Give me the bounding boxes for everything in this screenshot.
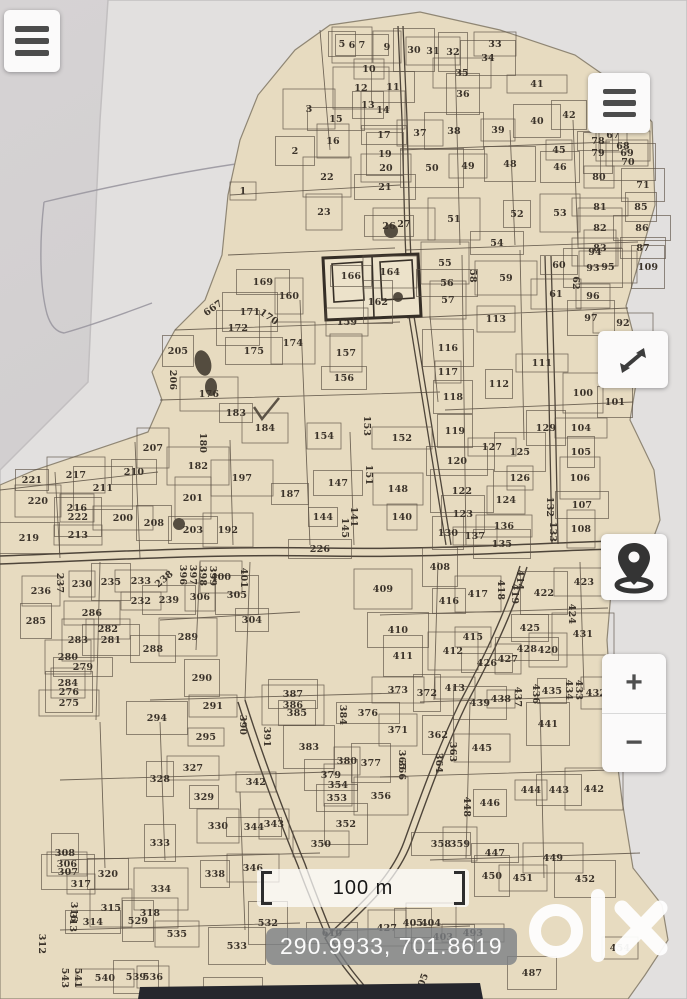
parcel-label: 401 [238,568,249,588]
parcel-label: 222 [68,512,88,523]
parcel-label: 52 [510,209,524,220]
parcel-label: 350 [311,839,332,850]
parcel-label: 172 [228,323,248,334]
parcel-label: 529 [128,916,149,927]
parcel-label: 294 [147,713,168,724]
scale-end-right [454,871,465,905]
parcel-label: 59 [499,273,513,284]
parcel-label: 118 [443,392,464,403]
parcel-label: 148 [388,484,409,495]
zoom-out-button[interactable]: − [602,714,666,773]
parcel-label: 166 [341,271,362,282]
parcel-label: 446 [480,798,501,809]
parcel-label: 159 [337,317,358,328]
parcel-label: 426 [477,658,498,669]
parcel-label: 447 [485,848,505,859]
parcel-label: 39 [491,125,505,136]
parcel-label: 117 [438,367,458,378]
parcel-label: 80 [592,172,606,183]
parcel-label: 233 [131,576,151,587]
parcel-label: 79 [591,148,605,159]
parcel-label: 152 [392,433,412,444]
parcel-label: 1 [240,186,247,197]
parcel-label: 352 [336,819,356,830]
parcel-label: 397 [187,565,198,585]
parcel-label: 135 [492,539,512,550]
parcel-label: 157 [336,348,356,359]
scale-bar: 100 m [257,869,469,907]
parcel-label: 5 [339,39,346,50]
parcel-label: 127 [482,442,502,453]
parcel-label: 533 [227,941,247,952]
parcel-label: 144 [313,512,334,523]
parcel-label: 372 [417,688,437,699]
parcel-label: 26 [382,221,396,232]
parcel-label: 354 [328,780,349,791]
parcel-label: 439 [470,698,491,709]
parcel-label: 353 [327,793,347,804]
parcel-label: 383 [299,742,319,753]
parcel-label: 176 [199,389,220,400]
parcel-label: 32 [446,47,460,58]
parcel-label: 376 [358,708,379,719]
parcel-label: 133 [547,522,558,542]
parcel-label: 187 [280,489,300,500]
parcel-label: 132 [544,497,555,517]
parcel-label: 276 [59,687,80,698]
parcel-label: 94 [588,247,602,258]
parcel-label: 445 [472,743,492,754]
parcel-label: 320 [98,869,119,880]
parcel-label: 174 [283,338,304,349]
parcel-label: 180 [197,433,208,454]
parcel-label: 51 [447,214,461,225]
parcel-label: 442 [584,784,604,795]
parcel-label: 415 [463,632,483,643]
parcel-label: 87 [636,243,650,254]
parcel-label: 208 [144,518,165,529]
parcel-label: 85 [634,202,648,213]
parcel-label: 57 [441,295,455,306]
parcel-label: 411 [393,651,413,662]
parcel-label: 433 [573,680,584,700]
parcel-label: 108 [571,524,592,535]
parcel-label: 434 [563,680,574,701]
parcel-label: 410 [388,625,409,636]
parcel-label: 54 [490,238,504,249]
parcel-label: 285 [26,616,46,627]
parcel-label: 23 [317,207,331,218]
parcel-label: 535 [167,929,187,940]
parcel-label: 428 [517,644,538,655]
parcel-label: 82 [593,223,607,234]
parcel-label: 283 [68,635,88,646]
parcel-label: 380 [337,756,358,767]
my-location-button[interactable] [601,534,667,600]
parcel-label: 27 [397,219,411,230]
parcel-label: 420 [538,645,559,656]
parcel-label: 112 [489,379,509,390]
parcel-label: 359 [450,839,471,850]
parcel-label: 211 [93,483,113,494]
parcel-label: 81 [593,202,607,213]
parcel-label: 409 [373,584,394,595]
parcel-label: 35 [455,68,469,79]
parcel-label: 49 [461,161,475,172]
map-photo[interactable]: 1235679303132333410111213141516173536373… [0,0,687,999]
parcel-label: 42 [562,110,576,121]
parcel-label: 416 [439,596,460,607]
parcel-label: 55 [438,258,452,269]
parcel-label: 408 [430,562,451,573]
parcel-label: 275 [59,698,79,709]
parcel-label: 147 [328,478,348,489]
parcel-label: 391 [261,727,272,747]
parcel-label: 279 [73,662,94,673]
parcel-label: 136 [494,521,515,532]
coordinates-readout: 290.9933, 701.8619 [266,928,517,965]
parcel-label: 37 [413,128,427,139]
parcel-label: 140 [392,512,413,523]
parcel-label: 281 [101,635,121,646]
parcel-label: 437 [512,687,523,707]
parcel-label: 62 [570,276,581,290]
parcel-label: 541 [72,968,83,988]
parcel-label: 171 [240,307,260,318]
expand-button[interactable] [598,331,668,388]
hamburger-icon [15,26,49,56]
parcel-label: 2 [292,146,299,157]
parcel-label: 169 [253,277,274,288]
scale-label: 100 m [272,877,454,900]
parcel-label: 443 [549,785,569,796]
parcel-label: 543 [59,968,70,988]
parcel-label: 539 [126,972,147,983]
parcel-label: 126 [510,473,531,484]
parcel-label: 197 [232,473,252,484]
parcel-label: 213 [68,530,88,541]
parcel-label: 364 [433,753,444,774]
parcel-label: 373 [388,685,408,696]
parcel-label: 333 [150,838,170,849]
parcel-label: 356 [371,791,392,802]
parcel-label: 48 [503,159,517,170]
parcel-label: 396 [177,565,188,586]
parcel-label: 330 [208,821,229,832]
parcel-label: 342 [246,777,266,788]
parcel-label: 13 [361,100,375,111]
parcel-label: 366 [396,760,407,781]
parcel-label: 418 [495,580,506,601]
parcel-label: 282 [98,624,118,635]
parcel-label: 235 [101,577,121,588]
parcel-label: 334 [151,884,172,895]
parcel-label: 290 [192,673,213,684]
parcel-label: 286 [82,608,103,619]
parcel-label: 317 [71,879,91,890]
map-viewer: 1235679303132333410111213141516173536373… [0,0,687,999]
parcel-label: 95 [601,262,615,273]
parcel-label: 113 [486,314,506,325]
parcel-label: 217 [66,470,86,481]
menu-button-top-left[interactable] [4,10,60,72]
parcel-label: 10 [362,64,376,75]
parcel-label: 156 [334,373,355,384]
parcel-label: 435 [542,686,562,697]
parcel-label: 201 [183,493,203,504]
parcel-label: 358 [431,839,452,850]
parcel-label: 398 [197,566,208,587]
parcel-label: 307 [58,867,78,878]
parcel-label: 116 [438,343,459,354]
parcel-label: 304 [242,615,263,626]
parcel-label: 210 [124,467,145,478]
menu-button-top-right[interactable] [588,73,650,133]
parcel-label: 106 [570,473,591,484]
parcel-label: 34 [481,53,495,64]
parcel-label: 154 [314,431,335,442]
parcel-label: 387 [283,689,303,700]
parcel-label: 203 [183,525,203,536]
parcel-label: 125 [510,447,530,458]
parcel-label: 384 [337,705,348,726]
scale-end-left [261,871,272,905]
parcel-label: 207 [143,443,163,454]
parcel-label: 183 [226,408,246,419]
parcel-label: 96 [586,291,600,302]
parcel-label: 104 [571,423,592,434]
parcel-label: 151 [363,465,374,485]
parcel-label: 40 [530,116,544,127]
parcel-label: 97 [584,313,598,324]
parcel-label: 17 [377,130,391,141]
parcel-label: 56 [440,278,454,289]
parcel-label: 425 [520,623,540,634]
parcel-label: 20 [379,163,393,174]
parcel-label: 130 [438,528,459,539]
parcel-label: 315 [101,903,121,914]
hamburger-icon [603,89,636,118]
parcel-label: 431 [573,629,593,640]
parcel-label: 9 [384,42,391,53]
parcel-label: 427 [498,654,518,665]
parcel-label: 312 [36,934,47,954]
parcel-label: 123 [453,509,473,520]
parcel-label: 78 [591,136,605,147]
parcel-label: 21 [378,182,392,193]
parcel-label: 50 [425,163,439,174]
parcel-label: 153 [361,416,372,436]
parcel-label: 137 [465,531,485,542]
parcel-label: 111 [532,358,552,369]
parcel-label: 441 [538,719,558,730]
parcel-label: 38 [447,126,461,137]
parcel-label: 19 [378,149,392,160]
parcel-label: 33 [488,39,502,50]
parcel-label: 449 [543,853,564,864]
parcel-label: 308 [55,848,76,859]
olx-logo [512,882,672,974]
parcel-label: 100 [573,388,594,399]
parcel-label: 540 [95,973,116,984]
zoom-controls: + − [602,654,666,772]
diagonal-arrows-icon [615,344,651,376]
zoom-in-button[interactable]: + [602,654,666,713]
parcel-label: 289 [178,632,199,643]
parcel-label: 288 [143,644,164,655]
parcel-label: 417 [468,589,488,600]
parcel-label: 160 [279,291,300,302]
parcel-label: 423 [574,577,594,588]
parcel-label: 205 [168,346,188,357]
minus-icon: − [625,726,643,760]
parcel-label: 239 [159,595,180,606]
parcel-label: 182 [188,461,208,472]
parcel-label: 306 [190,592,211,603]
parcel-label: 3 [306,104,313,115]
parcel-label: 22 [320,172,334,183]
parcel-label: 16 [326,136,340,147]
parcel-label: 93 [586,263,600,274]
parcel-label: 122 [452,486,472,497]
parcel-label: 30 [407,45,421,56]
parcel-label: 343 [264,819,284,830]
parcel-label: 295 [196,732,216,743]
parcel-label: 328 [150,774,171,785]
parcel-label: 105 [571,447,591,458]
parcel-label: 414 [514,570,525,591]
parcel-label: 327 [183,763,203,774]
parcel-label: 438 [491,694,512,705]
parcel-label: 305 [227,590,247,601]
parcel-label: 371 [388,725,408,736]
parcel-label: 119 [445,426,466,437]
parcel-label: 422 [534,588,554,599]
parcel-label: 14 [376,105,390,116]
parcel-label: 7 [359,40,366,51]
parcel-label: 162 [368,297,388,308]
parcel-label: 129 [536,423,557,434]
parcel-label: 385 [287,708,307,719]
parcel-label: 92 [616,318,630,329]
parcel-label: 413 [445,683,465,694]
parcel-label: 86 [635,223,649,234]
parcel-label: 362 [428,730,448,741]
parcel-label: 164 [380,267,401,278]
location-pin-icon [609,539,659,595]
parcel-label: 237 [54,573,65,593]
parcel-label: 344 [244,822,265,833]
parcel-label: 109 [638,262,659,273]
parcel-label: 6 [349,40,356,51]
parcel-label: 424 [566,604,577,625]
parcel-label: 45 [552,145,566,156]
parcel-label: 230 [72,579,93,590]
parcel-label: 412 [443,646,463,657]
parcel-label: 46 [553,162,567,173]
parcel-label: 363 [447,742,458,762]
parcel-label: 71 [636,180,650,191]
parcel-label: 11 [386,82,400,93]
parcel-label: 232 [131,596,151,607]
parcel-label: 41 [530,79,544,90]
parcel-label: 192 [218,525,238,536]
parcel-label: 184 [255,423,276,434]
parcel-label: 220 [28,496,49,507]
parcel-label: 400 [211,572,232,583]
parcel-label: 107 [572,500,592,511]
parcel-label: 377 [361,758,381,769]
parcel-label: 291 [203,701,223,712]
parcel-label: 219 [19,533,40,544]
parcel-label: 444 [521,785,542,796]
parcel-label: 31 [426,46,440,57]
parcel-label: 101 [605,397,625,408]
parcel-label: 314 [83,917,104,928]
parcel-label: 206 [167,370,178,391]
parcel-label: 58 [467,269,478,283]
parcel-label: 450 [482,871,503,882]
parcel-label: 15 [329,114,343,125]
parcel-label: 175 [244,346,264,357]
parcel-label: 221 [22,475,42,486]
parcel-label: 329 [194,792,215,803]
parcel-label: 226 [310,544,331,555]
parcel-label: 390 [237,715,248,736]
parcel-label: 124 [496,495,517,506]
parcel-label: 61 [549,289,563,300]
parcel-label: 145 [339,518,350,538]
parcel-label: 12 [354,83,368,94]
parcel-label: 436 [530,684,541,705]
parcel-label: 70 [621,157,635,168]
highlighted-compound [323,254,421,320]
parcel-label: 313 [67,912,78,932]
parcel-label: 60 [552,260,566,271]
plus-icon: + [625,666,643,700]
parcel-label: 448 [461,797,472,818]
parcel-label: 236 [31,586,52,597]
parcel-label: 53 [553,208,567,219]
parcel-label: 200 [113,513,134,524]
parcel-label: 36 [456,89,470,100]
parcel-label: 120 [447,456,468,467]
parcel-label: 338 [205,869,226,880]
